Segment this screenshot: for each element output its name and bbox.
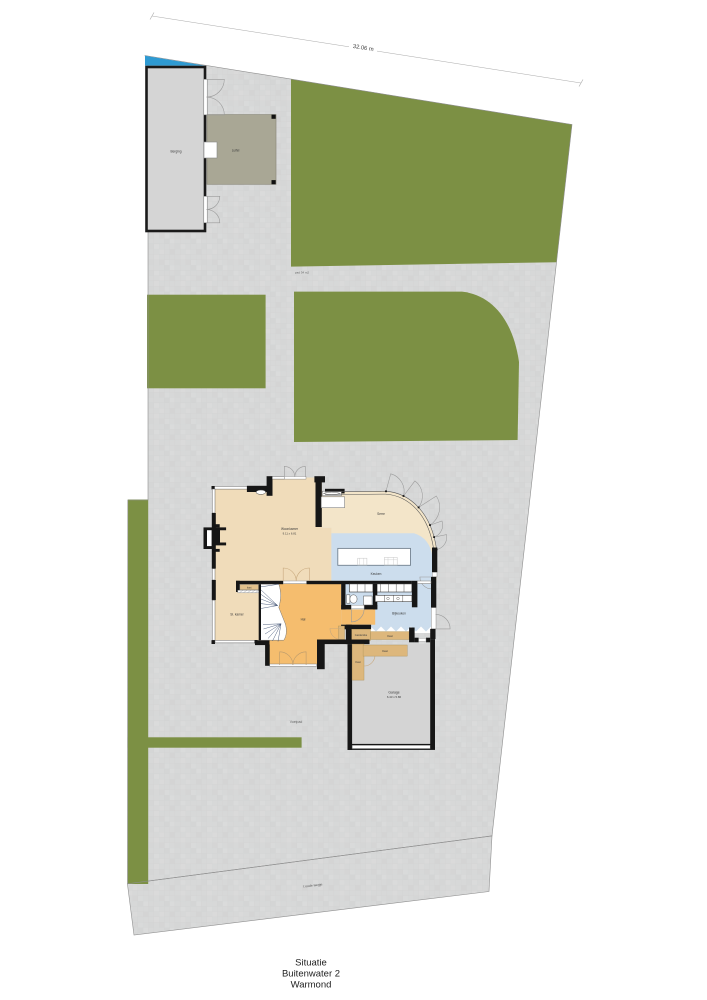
svg-text:Hal: Hal	[301, 618, 306, 622]
svg-text:Garderobe: Garderobe	[355, 633, 368, 637]
svg-text:Keuken: Keuken	[371, 572, 382, 576]
svg-text:32.06 m: 32.06 m	[352, 44, 374, 53]
svg-text:Sl. kamer: Sl. kamer	[230, 613, 244, 617]
svg-text:Situatie: Situatie	[295, 958, 327, 969]
svg-text:6.43 x 5.86: 6.43 x 5.86	[387, 695, 402, 699]
svg-text:Buitenwater 2: Buitenwater 2	[282, 969, 340, 980]
svg-text:Berging: Berging	[171, 150, 182, 154]
svg-text:Woonkamer: Woonkamer	[281, 527, 299, 531]
svg-text:Luifel: Luifel	[232, 149, 240, 153]
svg-text:Kast: Kast	[387, 634, 393, 638]
svg-text:Bijkeuken: Bijkeuken	[392, 612, 406, 616]
svg-text:Serre: Serre	[377, 512, 385, 516]
svg-text:Warmond: Warmond	[291, 980, 332, 991]
svg-text:kast: kast	[247, 586, 252, 589]
svg-text:pad 34 m2: pad 34 m2	[295, 271, 310, 275]
svg-text:Kast: Kast	[355, 660, 360, 664]
svg-text:Kast: Kast	[382, 649, 388, 653]
svg-text:Garage: Garage	[388, 691, 399, 695]
svg-text:Voetpad: Voetpad	[290, 720, 303, 724]
svg-text:9.11 x 6.81: 9.11 x 6.81	[283, 532, 297, 536]
